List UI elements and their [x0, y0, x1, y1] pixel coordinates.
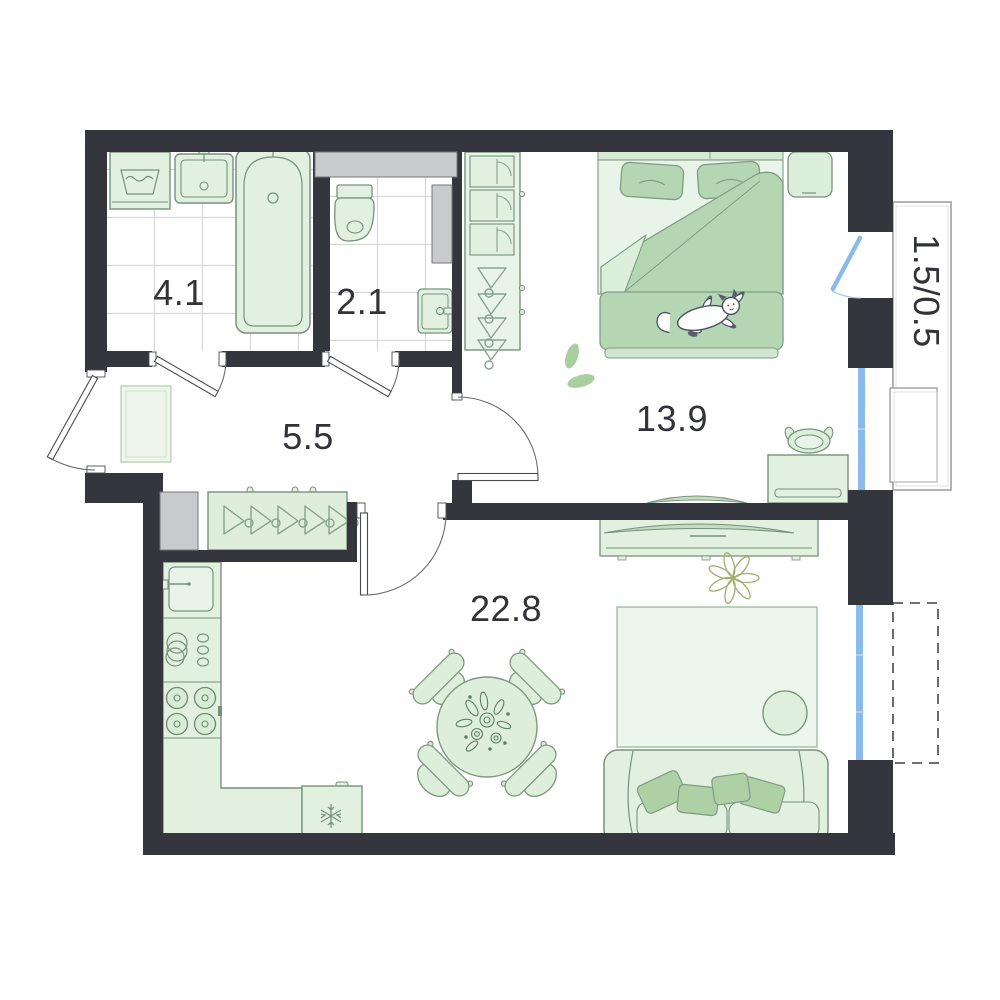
pillow-icon	[620, 162, 684, 200]
duct-block	[315, 152, 457, 177]
bedroom-area-label: 13.9	[636, 398, 708, 439]
bathroom-sink-icon	[175, 146, 233, 203]
toilet-door-icon	[322, 352, 399, 397]
bathtub-icon	[236, 144, 310, 333]
flower-plant-icon	[707, 552, 759, 605]
pouf-icon	[763, 691, 807, 735]
shaft-block	[160, 492, 198, 550]
living-area-label: 22.8	[470, 588, 542, 629]
plant-leaves-icon	[562, 342, 596, 391]
entry-rug-icon	[121, 386, 171, 462]
bedroom-door-icon	[452, 393, 538, 481]
shaft-block	[432, 185, 452, 263]
wardrobe-icon	[465, 152, 525, 369]
living-rug-icon	[617, 607, 817, 747]
balcony-door-icon	[830, 235, 863, 298]
living-door-icon	[357, 503, 446, 595]
sofa-icon	[604, 750, 828, 844]
floorplan-svg: 4.1 2.1 5.5 13.9 22.8 1.5/0.5	[0, 0, 1000, 1000]
bed-icon	[598, 151, 783, 358]
floorplan-canvas: 4.1 2.1 5.5 13.9 22.8 1.5/0.5	[0, 0, 1000, 1000]
hand-sink-icon	[418, 289, 452, 333]
bedroom-window-icon	[858, 368, 865, 490]
hallway-closet-icon	[208, 487, 358, 550]
bathroom-area-label: 4.1	[153, 272, 205, 313]
desk-icon	[768, 455, 848, 503]
future-balcony-outline	[893, 603, 938, 763]
balcony-area-label: 1.5/0.5	[906, 234, 947, 348]
kitchen-sink-icon	[161, 567, 213, 611]
hallway-area-label: 5.5	[282, 416, 334, 457]
dining-table-icon	[437, 677, 537, 777]
nightstand-icon	[788, 152, 832, 197]
tv-console-icon	[600, 518, 818, 560]
entrance-door-icon	[47, 370, 105, 473]
toilet-area-label: 2.1	[336, 281, 388, 322]
desk-chair-icon	[783, 426, 834, 453]
living-window-icon	[856, 605, 863, 760]
bedroom-tv-icon	[647, 496, 747, 503]
balcony-cabinet-icon	[890, 388, 937, 482]
washing-machine-icon	[110, 152, 170, 209]
toilet-icon	[335, 185, 374, 241]
